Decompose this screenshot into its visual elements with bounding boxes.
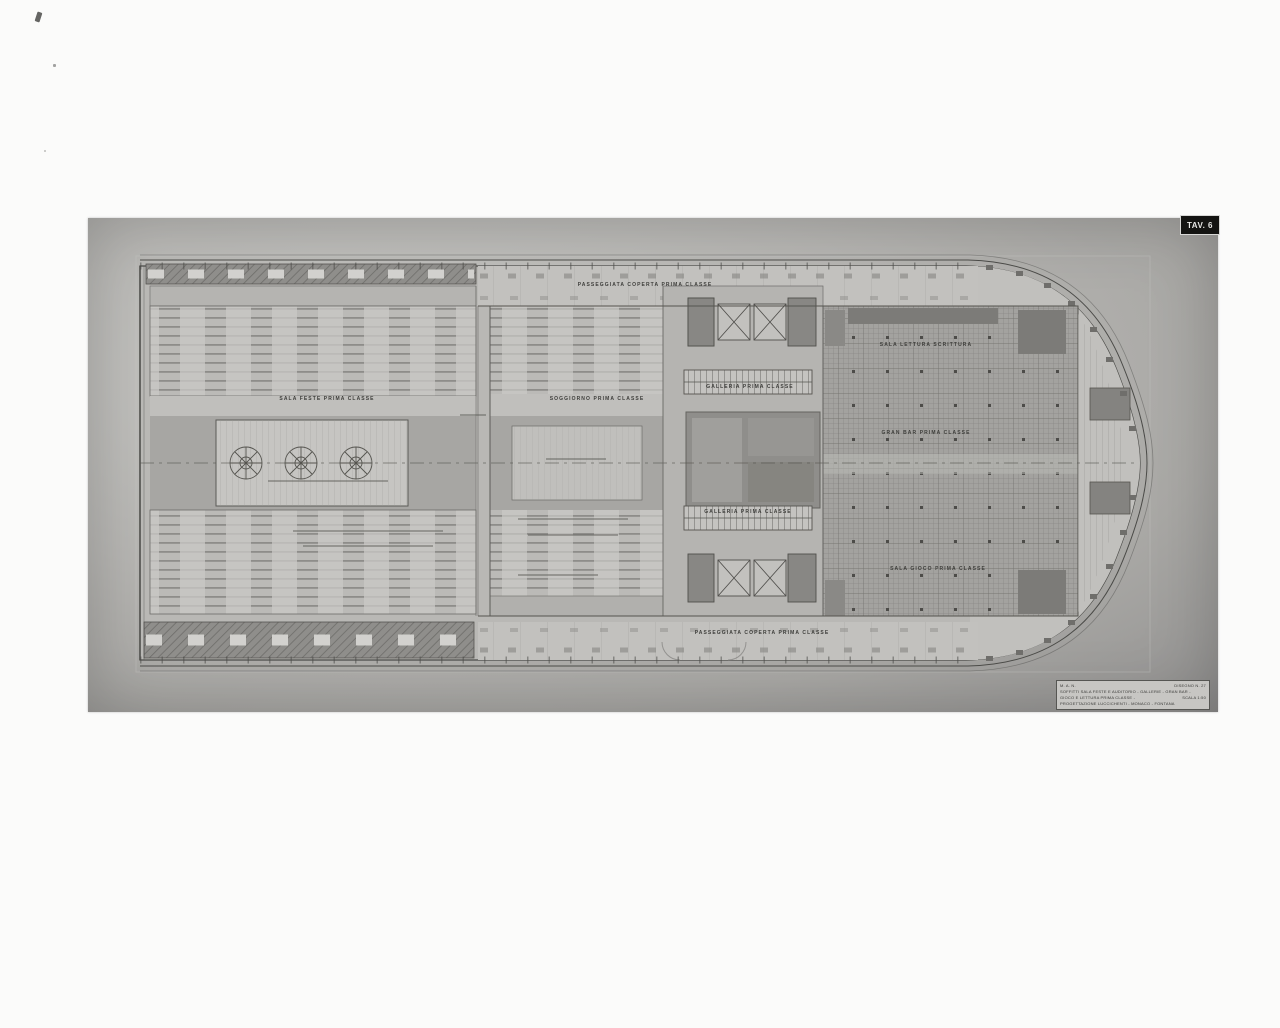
label-sala-feste: SALA FESTE PRIMA CLASSE [279, 396, 374, 402]
label-sala-lettura: SALA LETTURA SCRITTURA [880, 342, 972, 348]
title-block-designers: PROGETTAZIONE LUCCICHENTI - MONACO - FON… [1060, 701, 1175, 707]
label-galleria-top: GALLERIA PRIMA CLASSE [706, 384, 793, 390]
annotation-mark [268, 480, 388, 482]
annotation-mark [303, 545, 433, 547]
label-gran-bar: GRAN BAR PRIMA CLASSE [881, 430, 970, 436]
photo-of-deck-plan: SALA FESTE PRIMA CLASSE SOGGIORNO PRIMA … [88, 218, 1218, 712]
annotation-mark [518, 574, 598, 576]
deck-plan-graphic [88, 218, 1218, 712]
photograph-page: SALA FESTE PRIMA CLASSE SOGGIORNO PRIMA … [0, 0, 1280, 1028]
label-sala-gioco: SALA GIOCO PRIMA CLASSE [890, 566, 986, 572]
dust-speck [44, 150, 46, 152]
label-galleria-bottom: GALLERIA PRIMA CLASSE [704, 509, 791, 515]
annotation-mark [293, 530, 443, 532]
annotation-mark [528, 534, 618, 536]
title-block: M. A. N. DISEGNO N. 27 SOFFITTI SALA FES… [1056, 680, 1210, 710]
annotation-mark [546, 458, 606, 460]
dust-speck [35, 11, 43, 22]
annotation-mark [460, 414, 486, 416]
title-block-scale: SCALA 1:50 [1182, 695, 1206, 701]
label-soggiorno: SOGGIORNO PRIMA CLASSE [550, 396, 645, 402]
plate-number-tab: TAV. 6 [1180, 215, 1220, 235]
label-passeggiata-top: PASSEGGIATA COPERTA PRIMA CLASSE [578, 282, 713, 288]
dust-speck [53, 64, 56, 67]
label-passeggiata-bottom: PASSEGGIATA COPERTA PRIMA CLASSE [695, 630, 830, 636]
annotation-mark [518, 518, 628, 520]
